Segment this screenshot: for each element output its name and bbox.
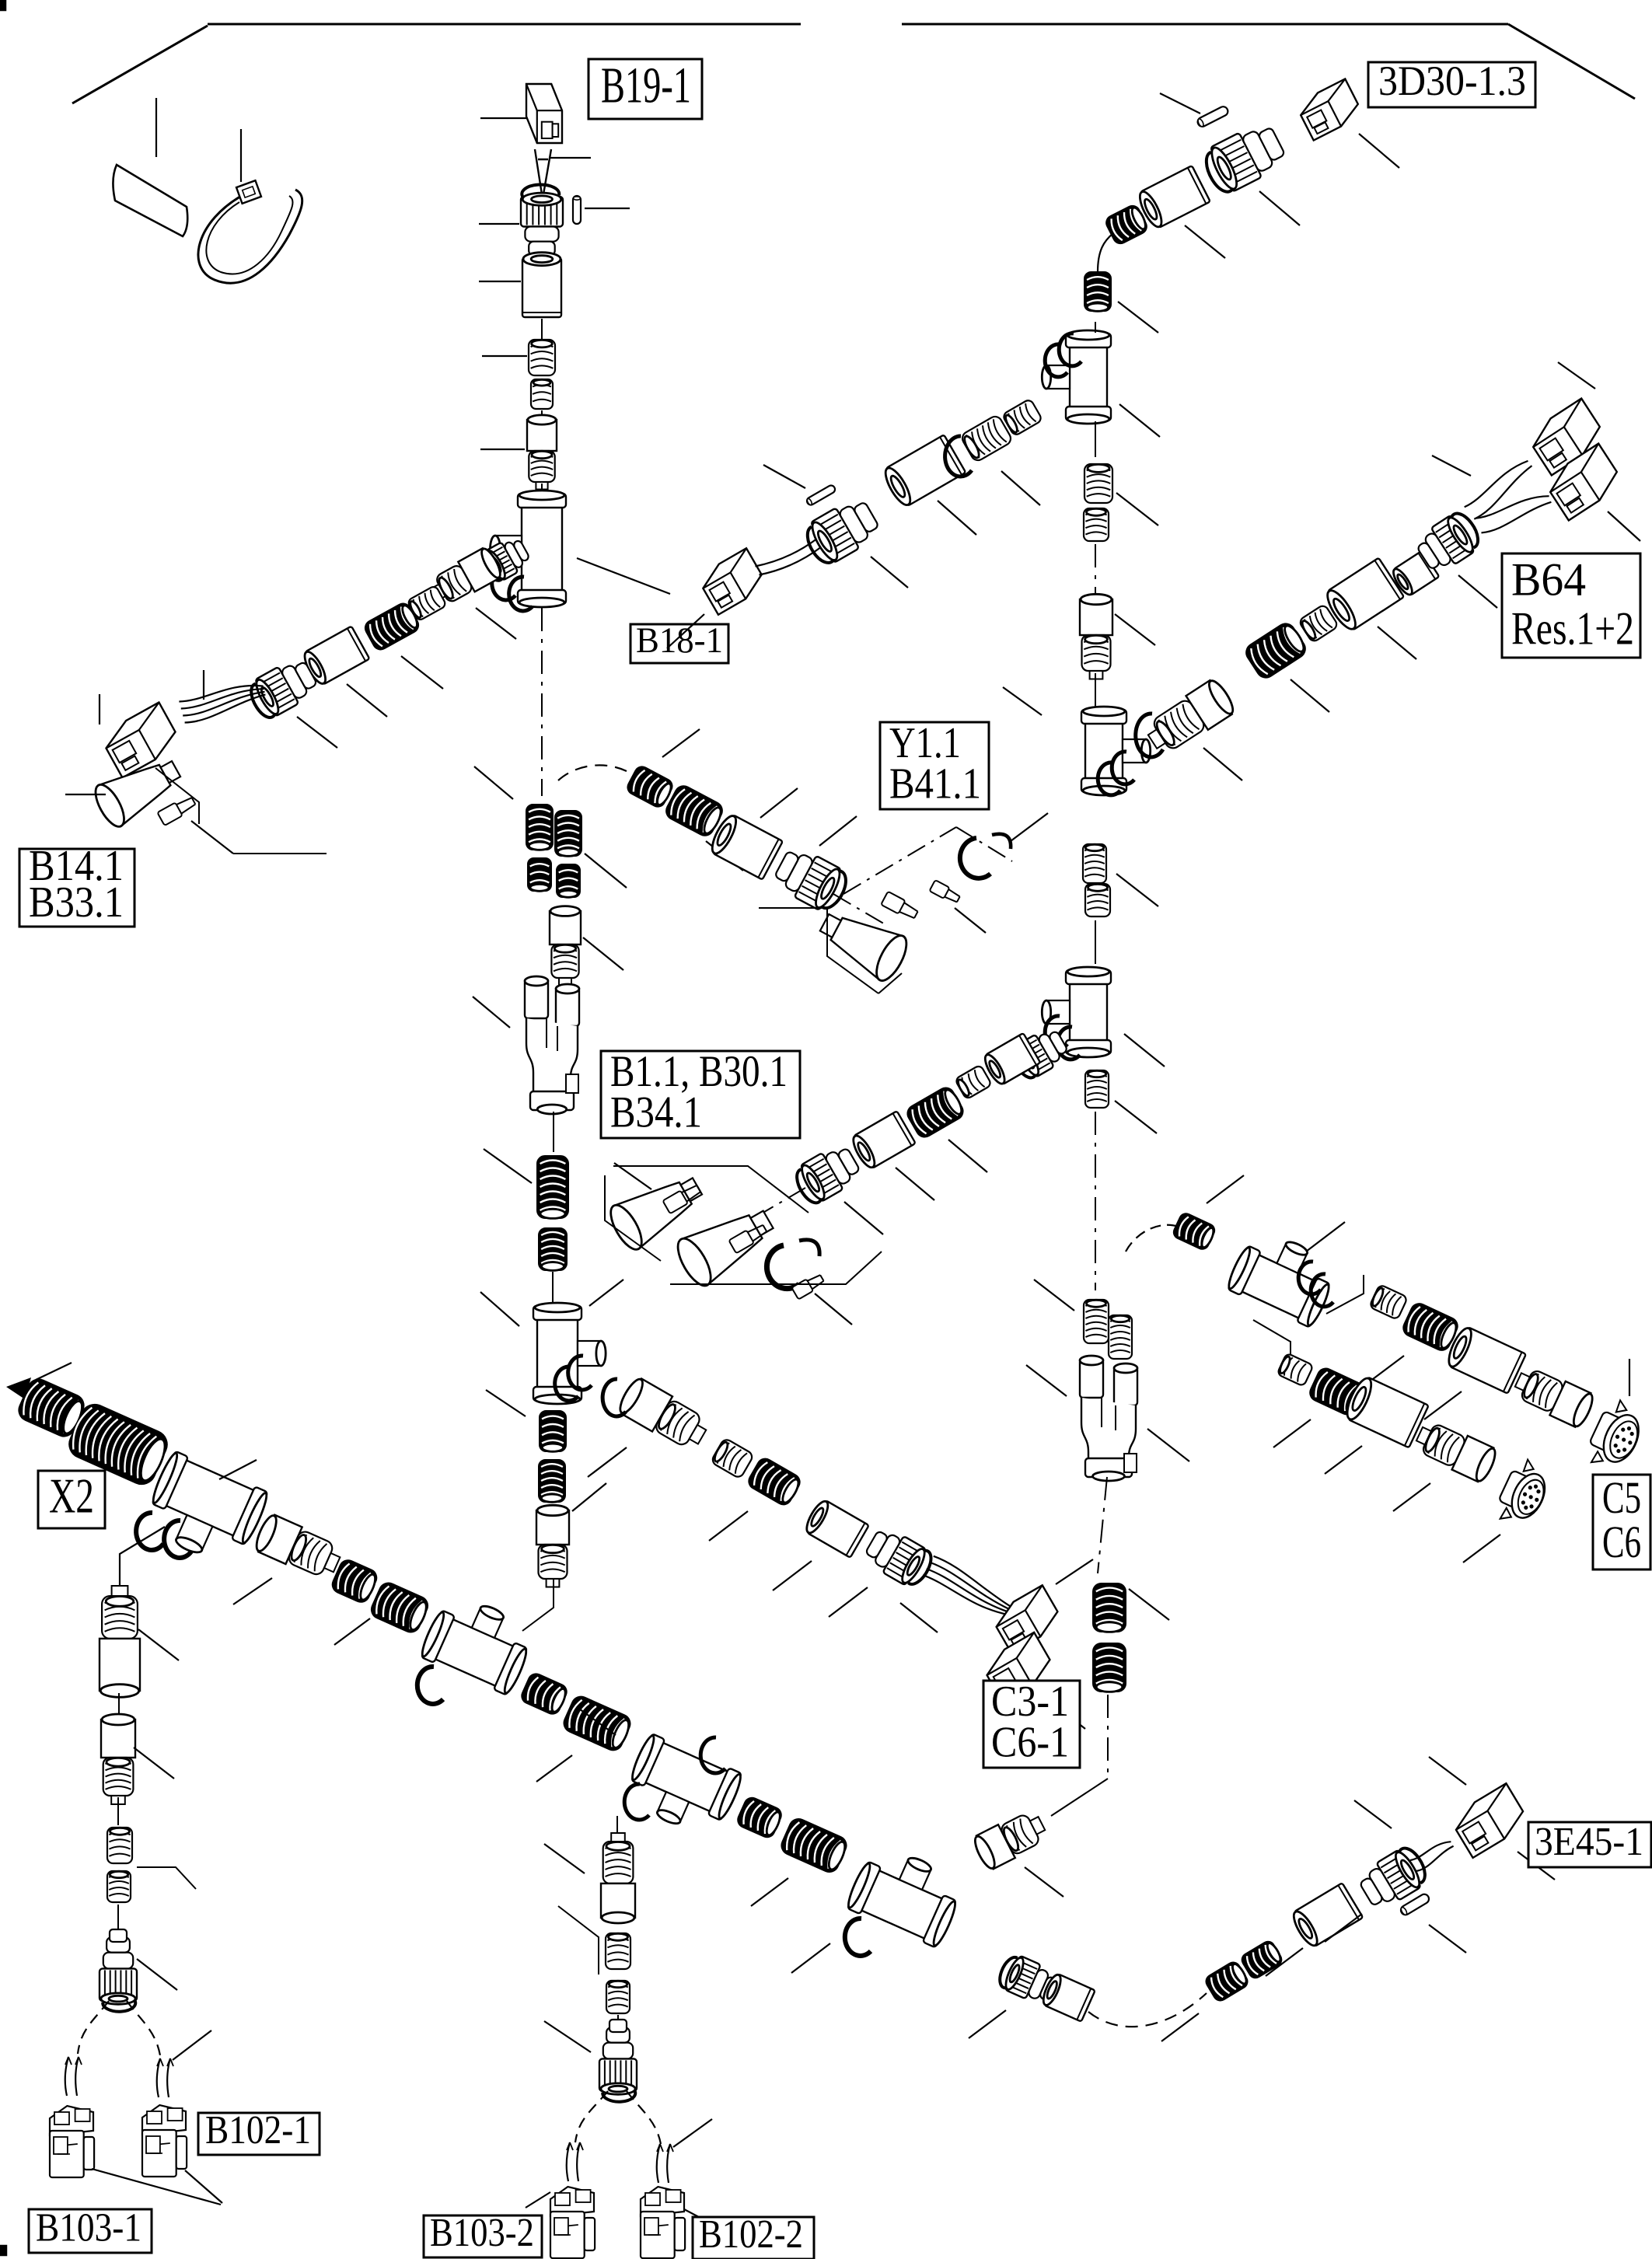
svg-text:Res.1+2: Res.1+2 (1511, 603, 1634, 655)
svg-text:3E45-1: 3E45-1 (1535, 1820, 1643, 1864)
svg-text:B18-1: B18-1 (636, 620, 723, 661)
svg-text:B103-1: B103-1 (36, 2205, 141, 2250)
svg-text:B64: B64 (1511, 554, 1586, 606)
svg-text:3D30-1.3: 3D30-1.3 (1378, 58, 1526, 104)
svg-text:B41.1: B41.1 (889, 759, 981, 808)
svg-text:B34.1: B34.1 (610, 1088, 702, 1136)
svg-text:X2: X2 (49, 1468, 94, 1523)
svg-text:B102-1: B102-1 (205, 2108, 311, 2153)
svg-text:B102-2: B102-2 (699, 2212, 803, 2257)
svg-text:B33.1: B33.1 (29, 878, 124, 927)
svg-text:B103-2: B103-2 (430, 2211, 534, 2255)
svg-text:C6: C6 (1602, 1517, 1641, 1567)
svg-text:C6-1: C6-1 (991, 1718, 1069, 1766)
svg-text:C5: C5 (1602, 1472, 1641, 1523)
svg-text:B19-1: B19-1 (601, 57, 691, 113)
